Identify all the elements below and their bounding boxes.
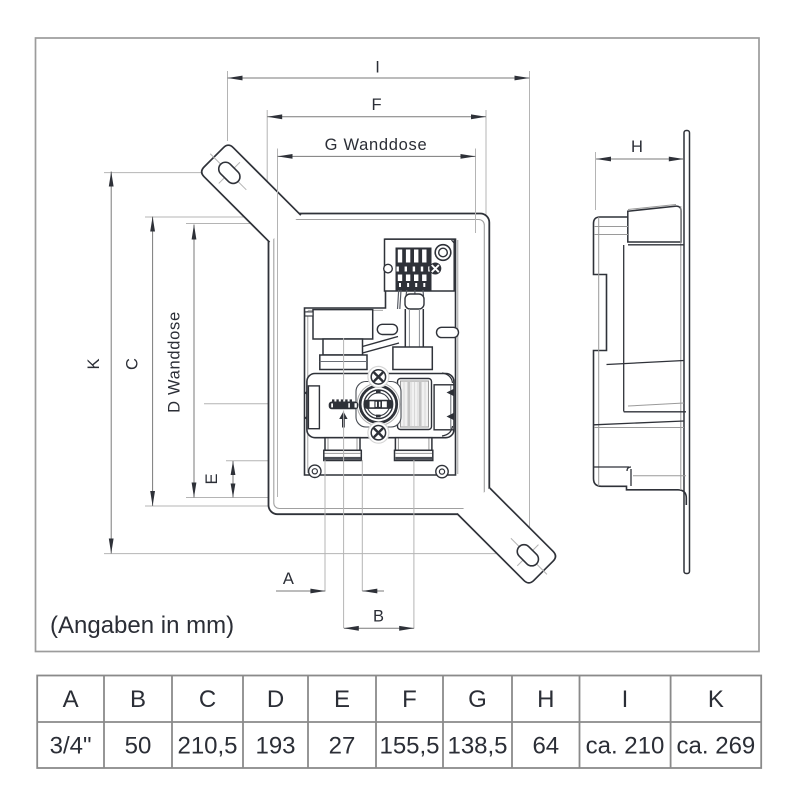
svg-text:C: C <box>124 358 142 370</box>
svg-text:(Angaben in mm): (Angaben in mm) <box>50 612 234 639</box>
svg-text:B: B <box>130 686 146 713</box>
svg-text:E: E <box>334 686 350 713</box>
svg-text:G Wanddose: G Wanddose <box>325 136 428 154</box>
svg-text:G: G <box>468 686 487 713</box>
svg-text:210,5: 210,5 <box>177 733 237 760</box>
svg-text:H: H <box>537 686 554 713</box>
svg-text:138,5: 138,5 <box>447 733 507 760</box>
svg-text:F: F <box>371 96 381 114</box>
svg-text:K: K <box>708 686 724 713</box>
svg-text:D Wanddose: D Wanddose <box>166 311 184 413</box>
svg-text:3/4": 3/4" <box>50 733 92 760</box>
svg-text:D: D <box>267 686 284 713</box>
svg-text:155,5: 155,5 <box>379 733 439 760</box>
svg-text:I: I <box>622 686 629 713</box>
svg-text:ca. 269: ca. 269 <box>677 733 756 760</box>
svg-text:64: 64 <box>532 733 559 760</box>
svg-text:193: 193 <box>255 733 295 760</box>
svg-text:A: A <box>283 570 294 588</box>
svg-text:I: I <box>375 59 380 77</box>
svg-text:H: H <box>631 138 643 156</box>
svg-text:27: 27 <box>329 733 356 760</box>
svg-text:E: E <box>203 473 221 484</box>
svg-text:A: A <box>63 686 79 713</box>
svg-text:F: F <box>402 686 417 713</box>
svg-text:B: B <box>373 608 384 626</box>
svg-text:50: 50 <box>125 733 152 760</box>
svg-text:C: C <box>199 686 216 713</box>
svg-text:K: K <box>85 358 103 369</box>
svg-text:ca. 210: ca. 210 <box>586 733 665 760</box>
